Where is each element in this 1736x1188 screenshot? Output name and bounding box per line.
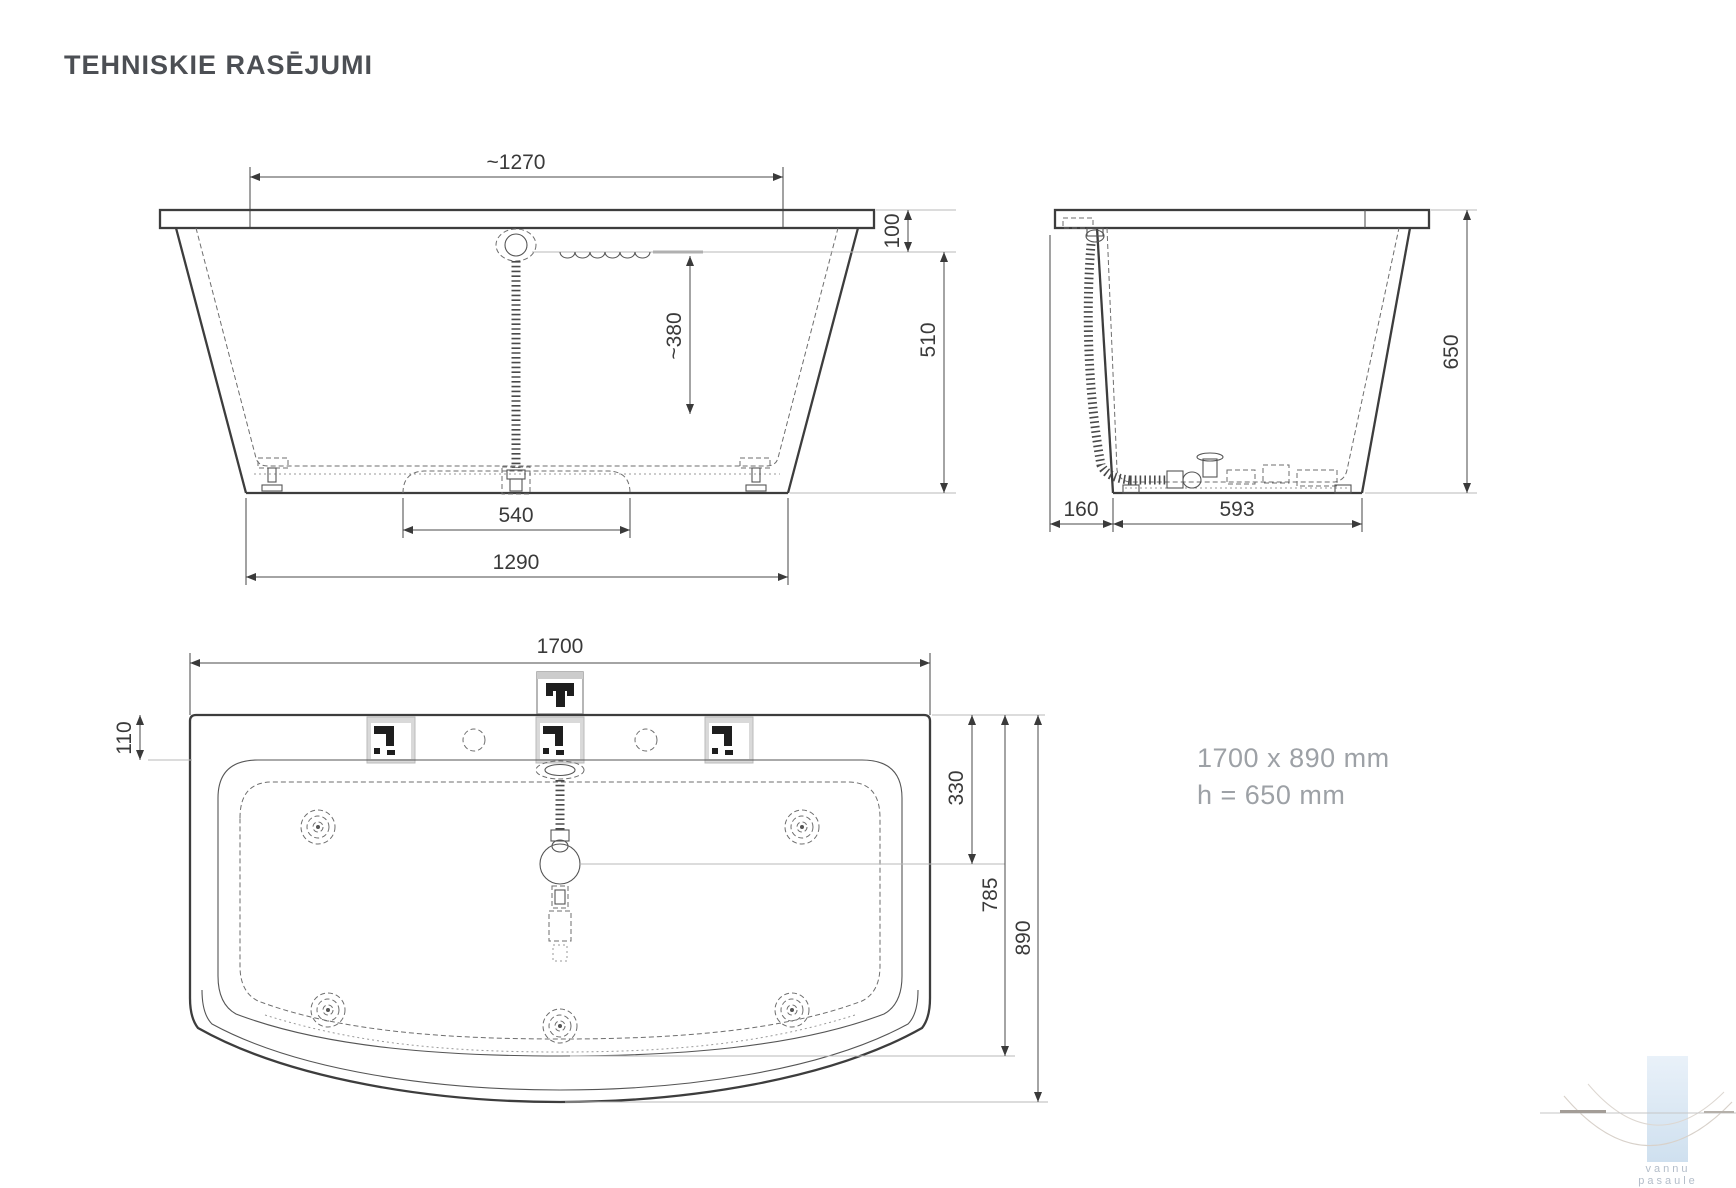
dim-label-front-top-width: ~1270 (487, 151, 546, 174)
side-view-svg: 650 160 593 (1005, 140, 1525, 610)
logo-text-line1: vannu (1646, 1163, 1691, 1175)
tub-rim-front (160, 210, 874, 228)
dim-label-top-length: 1700 (537, 635, 584, 658)
dim-label-front-support-spacing: 540 (498, 504, 533, 527)
spec-height: h = 650 mm (1197, 777, 1390, 814)
dim-label-front-depth: 510 (917, 322, 940, 357)
page-title: TEHNISKIE RASĒJUMI (64, 50, 373, 81)
drain-hose-front (496, 229, 536, 494)
dim-label-top-rim-width: 110 (113, 721, 136, 754)
front-view-drawing: ~1270 ~380 (90, 140, 990, 610)
water-line (532, 252, 956, 258)
mounting-bracket-icons (367, 717, 753, 763)
spec-size: 1700 x 890 mm (1197, 740, 1390, 777)
dim-front-support-spacing: 540 (403, 498, 630, 538)
dim-front-depth: 510 (790, 252, 956, 493)
deck-hole (635, 729, 657, 751)
tub-rim-side (1055, 210, 1429, 228)
jet-nozzle (785, 810, 819, 844)
dim-label-top-inner-length: 785 (979, 877, 1002, 912)
logo-dash (1560, 1110, 1606, 1113)
dim-label-front-base-width: 1290 (493, 551, 540, 574)
mounting-bracket-icon (367, 717, 415, 763)
dim-label-side-height: 650 (1440, 334, 1463, 369)
logo-dash (1704, 1111, 1734, 1113)
jet-nozzle (301, 810, 335, 844)
dim-label-top-drain-offset: 330 (945, 770, 968, 805)
tub-outline-top (190, 715, 930, 1102)
dim-top-rim-width: 110 (113, 715, 192, 760)
front-view-svg: ~1270 ~380 (90, 140, 990, 610)
tub-body-side (1097, 228, 1410, 493)
side-view-drawing: 650 160 593 (1005, 140, 1525, 610)
brand-logo-svg: vannu pasaule (1536, 1050, 1736, 1188)
dim-front-top-width: ~1270 (250, 151, 783, 228)
drain-hose-side (1086, 228, 1351, 493)
top-view-svg: 1700 (100, 590, 1080, 1150)
dim-label-top-overall-width: 890 (1012, 920, 1035, 955)
mounting-bracket-icon (536, 717, 584, 763)
top-view-drawing: 1700 (100, 590, 1080, 1150)
dim-label-side-base-length: 593 (1219, 498, 1254, 521)
logo-text-line2: pasaule (1638, 1175, 1698, 1187)
mounting-bracket-icon (705, 717, 753, 763)
dim-top-drain-offset: 330 (932, 715, 1045, 864)
dim-front-water-depth: ~380 (663, 256, 690, 414)
deck-hole (463, 729, 485, 751)
dim-label-front-rim-height: 100 (881, 213, 904, 248)
dim-side-bottom: 160 593 (1050, 235, 1362, 532)
dim-label-side-overhang: 160 (1063, 498, 1098, 521)
dim-side-height: 650 (1365, 210, 1477, 493)
dim-top-inner-length: 785 (570, 715, 1015, 1056)
size-specs: 1700 x 890 mm h = 650 mm (1197, 740, 1390, 814)
jet-nozzles (301, 810, 819, 1043)
logo-band (1647, 1056, 1688, 1162)
dim-top-overall-width: 890 (565, 715, 1048, 1102)
dim-front-rim-height: 100 (876, 210, 956, 252)
jet-nozzle (543, 1009, 577, 1043)
jet-nozzle (311, 993, 345, 1027)
dim-label-front-water-depth: ~380 (663, 312, 686, 359)
drain-assembly-top (536, 761, 1005, 961)
jet-nozzle (775, 993, 809, 1027)
brand-logo: vannu pasaule (1536, 1050, 1736, 1188)
faucet-mount-icon (537, 672, 583, 714)
